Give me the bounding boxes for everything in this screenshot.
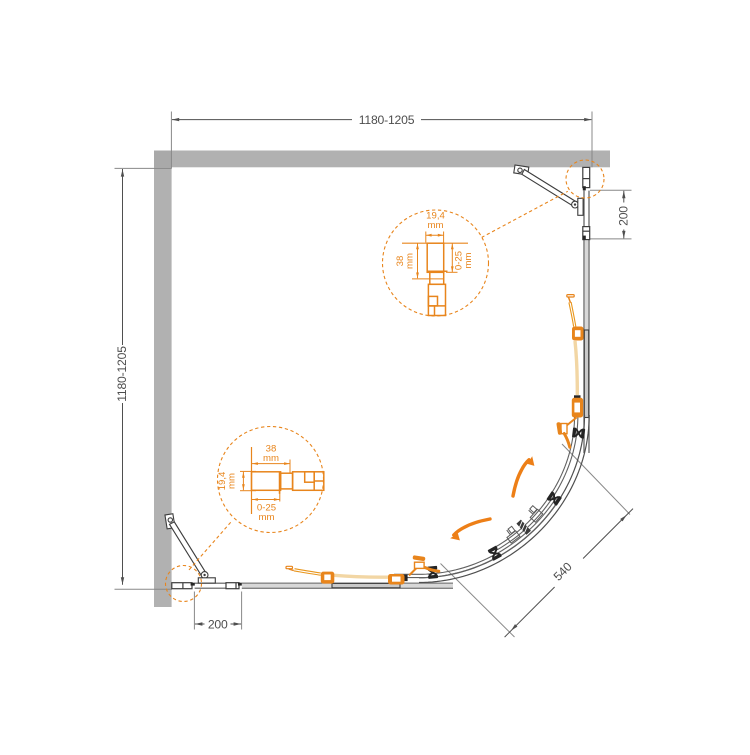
svg-text:mm: mm: [428, 220, 444, 231]
svg-text:1180-1205: 1180-1205: [115, 346, 129, 402]
svg-text:mm: mm: [263, 453, 279, 464]
svg-text:mm: mm: [227, 473, 238, 489]
svg-text:200: 200: [208, 618, 228, 632]
svg-text:1180-1205: 1180-1205: [359, 113, 415, 127]
svg-text:mm: mm: [405, 253, 416, 269]
svg-text:mm: mm: [463, 253, 474, 269]
svg-text:200: 200: [616, 206, 630, 226]
svg-text:mm: mm: [259, 512, 275, 523]
